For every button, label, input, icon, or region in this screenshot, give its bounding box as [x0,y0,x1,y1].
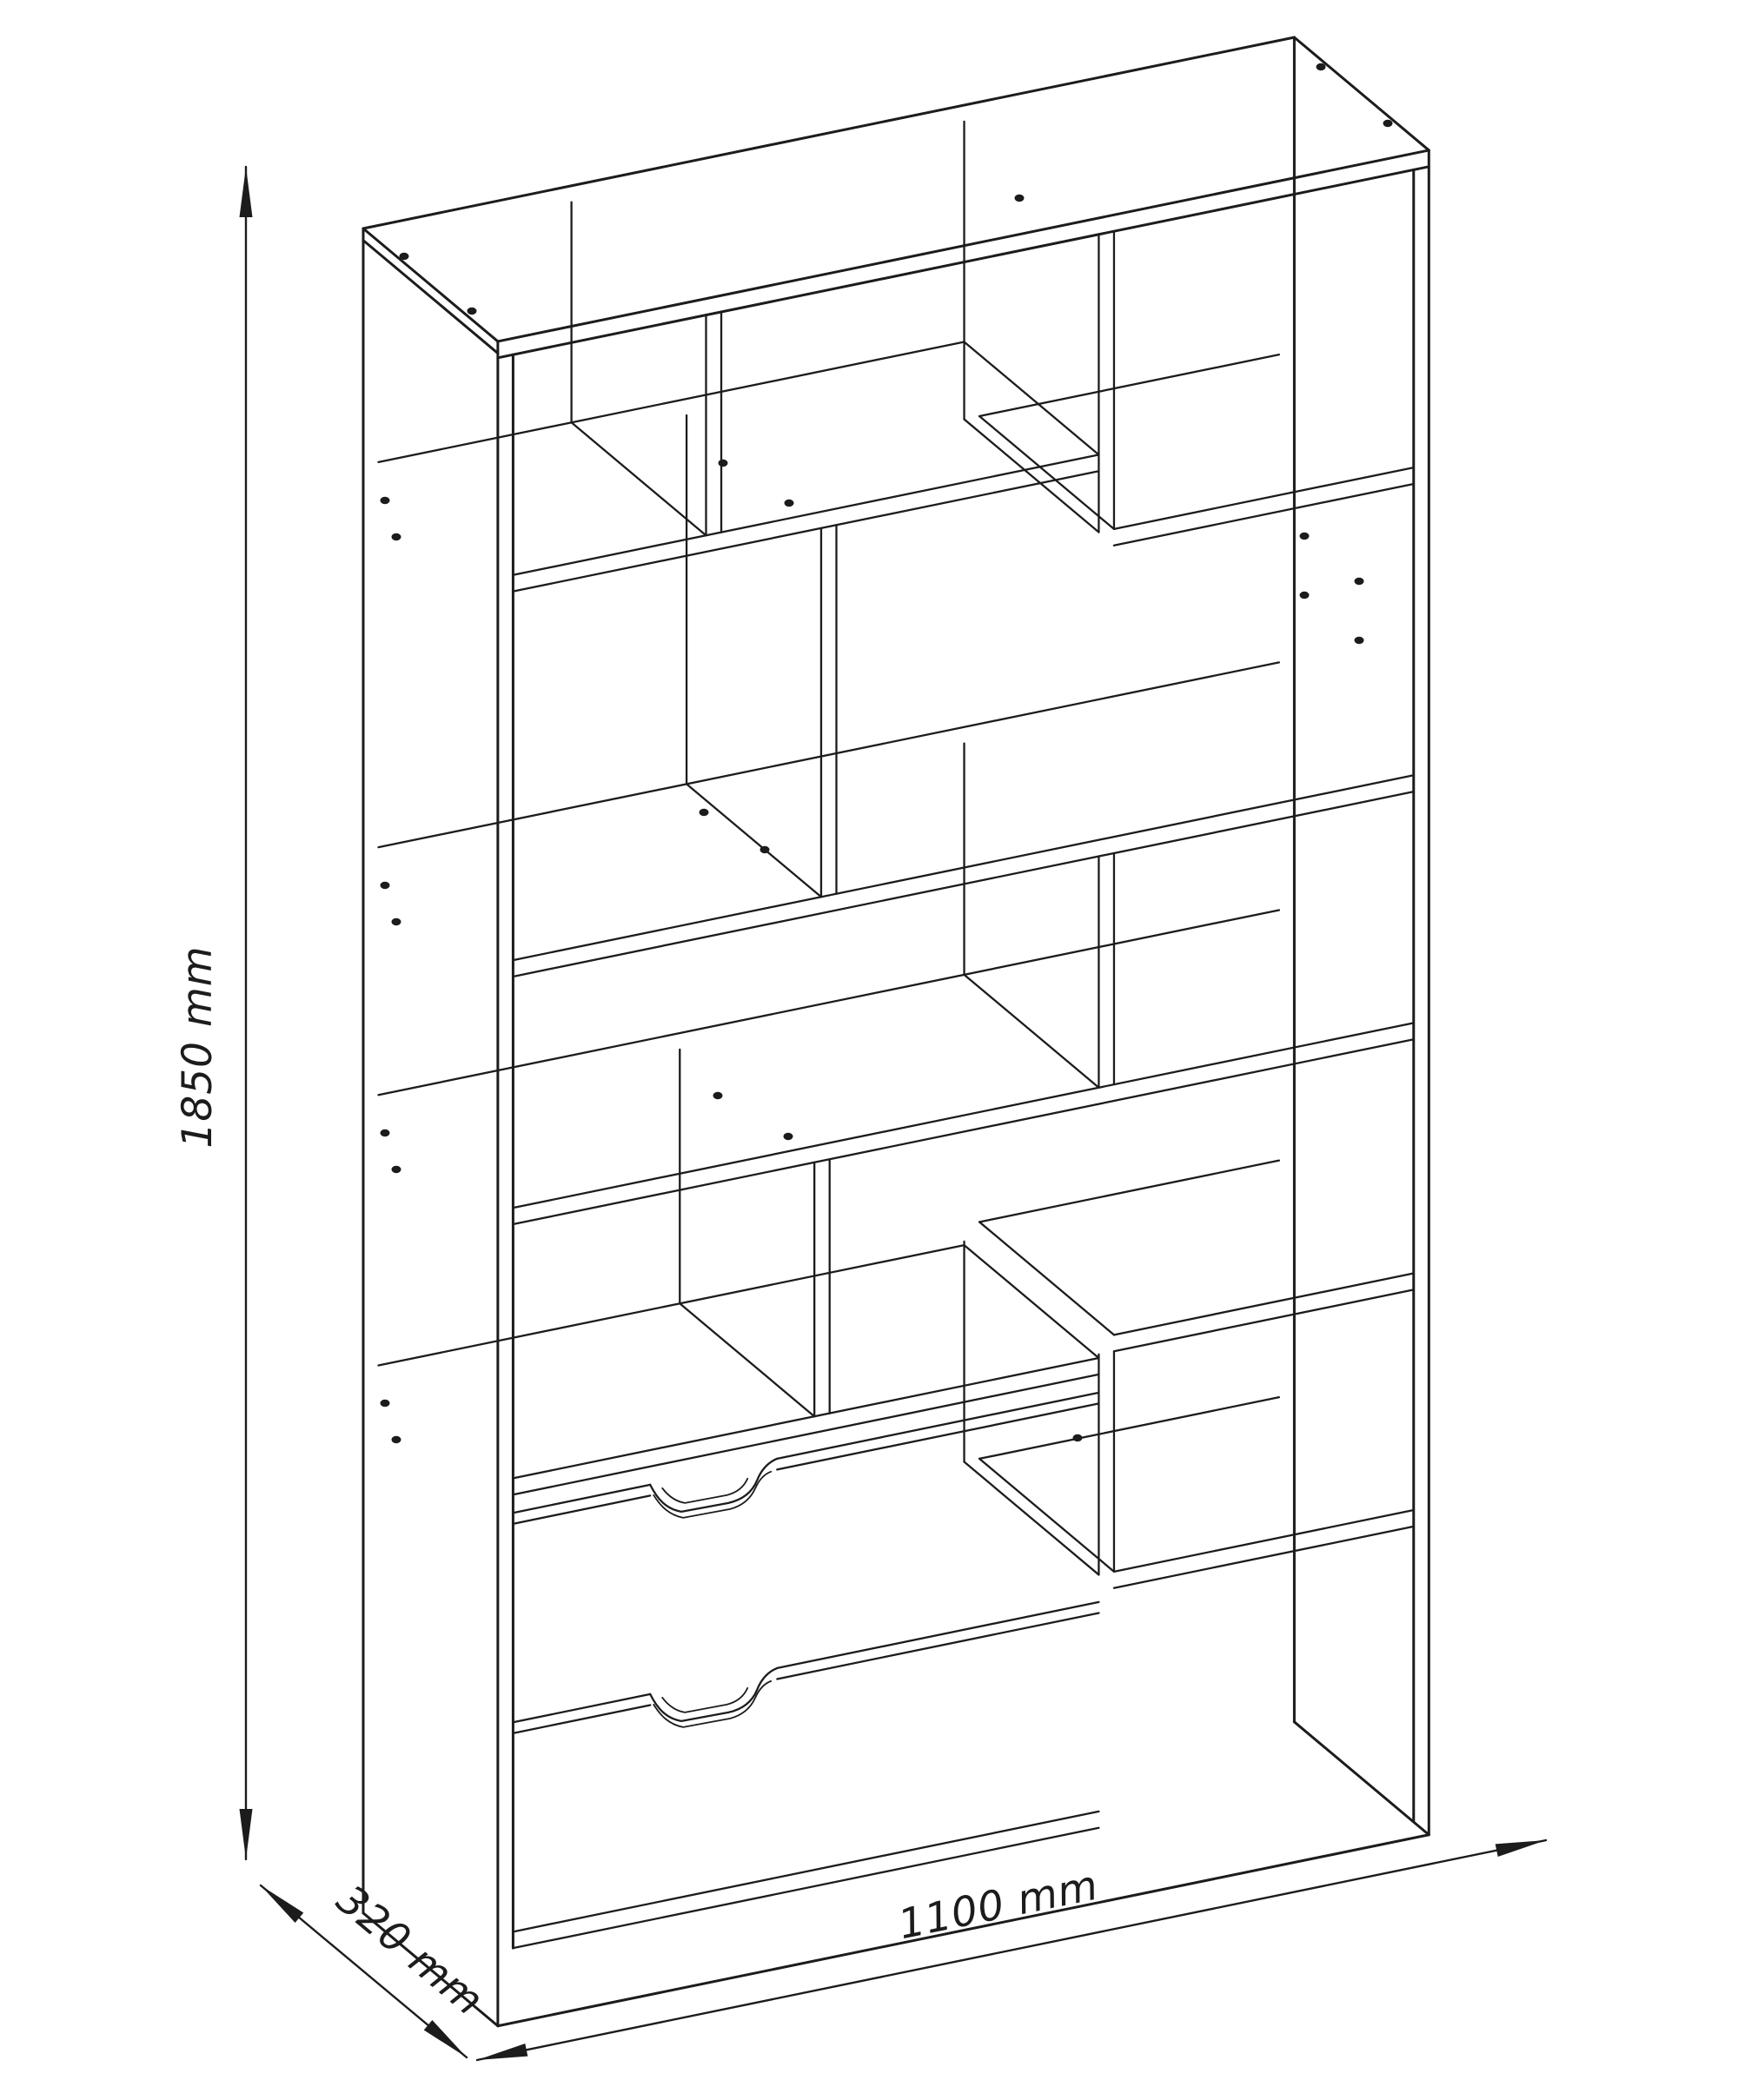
technical-drawing-page: 1850 mm 320 mm 1100 mm [0,0,1738,2100]
height-dimension-label: 1850 mm [174,945,222,1148]
drill-holes [381,63,1393,1443]
bookshelf-outline [363,37,1429,2026]
shelves-and-dividers [379,122,1414,1948]
furniture-dimension-diagram: 1850 mm 320 mm 1100 mm [0,0,1738,2100]
width-dimension-label: 1100 mm [894,1861,1102,1949]
drawer-fronts [513,1393,1098,1733]
depth-dimension-label: 320 mm [328,1876,493,2025]
